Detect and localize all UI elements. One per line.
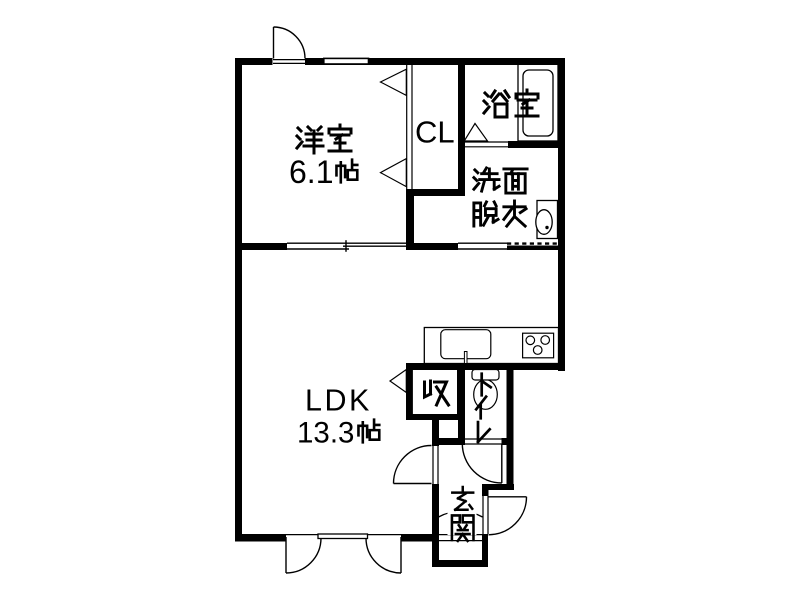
svg-text:LDK: LDK xyxy=(305,384,372,418)
svg-text:13.3: 13.3 xyxy=(297,417,354,450)
svg-text:6.1: 6.1 xyxy=(289,154,333,190)
svg-text:CL: CL xyxy=(415,115,455,150)
